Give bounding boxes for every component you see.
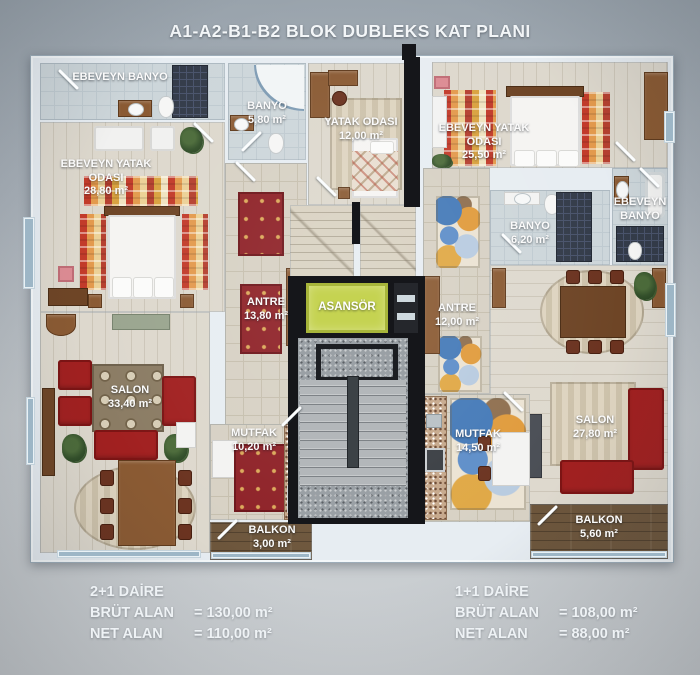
room-ebeveyn-yatak-left <box>40 122 225 312</box>
tv-cabinet <box>42 388 55 476</box>
legend-1plus1: 1+1 DAİRE BRÜT ALAN= 108,00 m² NET ALAN=… <box>455 582 638 645</box>
sofa-red <box>560 460 634 494</box>
dresser <box>48 288 88 306</box>
dining-chair <box>178 470 192 486</box>
pillow <box>536 150 557 167</box>
pillow <box>558 150 579 167</box>
rug-mosaic <box>182 214 208 290</box>
room-salon-left <box>40 312 210 553</box>
room-antre-right <box>423 168 490 394</box>
dining-chair <box>100 524 114 540</box>
dining-table <box>118 460 176 546</box>
shower-tiles <box>172 65 208 118</box>
legend-2plus1: 2+1 DAİRE BRÜT ALAN= 130,00 m² NET ALAN=… <box>90 582 273 645</box>
sink-icon <box>514 193 531 205</box>
sofa-red <box>94 430 158 460</box>
chair <box>478 466 491 481</box>
elevator-label: ASANSÖR <box>306 301 388 313</box>
dining-chair <box>588 270 602 284</box>
window-bay <box>24 218 34 288</box>
stair-divider-wall <box>352 202 360 244</box>
room-label: ANTRE13,80 m² <box>230 296 302 323</box>
buffet <box>492 268 506 308</box>
rug-mosaic <box>582 92 610 164</box>
page-title: A1-A2-B1-B2 BLOK DUBLEKS KAT PLANI <box>0 21 700 42</box>
room-label: EBEVEYN BANYO <box>613 196 667 223</box>
window <box>58 551 200 557</box>
window-bay <box>666 284 675 336</box>
legend-title: 2+1 DAİRE <box>90 582 273 603</box>
armchair-white <box>150 126 175 151</box>
armchair-red <box>58 396 92 426</box>
dining-chair <box>100 498 114 514</box>
ottoman <box>434 76 450 89</box>
sofa-red <box>162 376 196 426</box>
pillow <box>133 277 153 298</box>
rug-pebble <box>438 336 482 392</box>
window-bay <box>665 112 674 142</box>
rug-red <box>234 444 290 512</box>
core-divider-wall <box>404 57 420 207</box>
dining-chair <box>178 498 192 514</box>
room-label: SALON33,40 m² <box>97 384 163 411</box>
sideboard <box>112 314 170 330</box>
blanket <box>352 151 398 191</box>
toilet-icon <box>158 96 174 118</box>
sofa-white <box>94 126 144 151</box>
floor-plan-scene: A1-A2-B1-B2 BLOK DUBLEKS KAT PLANI EBEVE… <box>0 0 700 675</box>
staircase-upper-right <box>360 205 416 277</box>
room-label: BALKON3,00 m² <box>239 524 305 551</box>
dining-chair <box>610 340 624 354</box>
room-label: EBEVEYN YATAK ODASI28,80 m² <box>52 158 160 199</box>
staircase-upper-left <box>290 205 354 277</box>
legend-title: 1+1 DAİRE <box>455 582 638 603</box>
plant-icon <box>634 272 656 300</box>
desk <box>310 72 330 118</box>
sofa-red <box>628 388 664 470</box>
nightstand <box>338 187 350 199</box>
room-label: EBEVEYN BANYO <box>70 71 170 85</box>
toilet-icon <box>628 242 642 260</box>
desk <box>328 70 358 86</box>
rug-pebble <box>436 196 480 268</box>
window <box>27 398 34 464</box>
kitchen-sink-icon <box>426 414 442 428</box>
armchair-red <box>58 360 92 390</box>
shaft-vent-icon <box>397 313 415 320</box>
ottoman <box>58 266 74 282</box>
nightstand <box>88 294 102 308</box>
side-table <box>46 314 76 336</box>
rug-mosaic <box>80 214 106 290</box>
dining-chair <box>178 524 192 540</box>
shaft-vent-icon <box>397 295 415 302</box>
sink-icon <box>128 103 144 116</box>
dining-chair <box>566 340 580 354</box>
room-label: MUTFAK10,20 m² <box>221 427 287 454</box>
serving-cart <box>176 422 196 448</box>
plant-icon <box>62 434 86 462</box>
room-label: BALKON5,60 m² <box>561 514 637 541</box>
room-label: BANYO6,20 m² <box>495 220 565 247</box>
desk-chair <box>332 91 347 106</box>
rug-red <box>238 192 284 256</box>
dining-chair <box>610 270 624 284</box>
pillow <box>112 277 132 298</box>
balcony-railing <box>212 553 310 558</box>
dining-chair <box>100 470 114 486</box>
dining-chair <box>588 340 602 354</box>
room-label: MUTFAK14,50 m² <box>445 428 511 455</box>
toilet-icon <box>268 133 284 154</box>
balcony-railing <box>532 552 666 557</box>
room-label: EBEVEYN YATAK ODASI25,50 m² <box>438 122 530 163</box>
room-label: SALON27,80 m² <box>557 414 633 441</box>
room-label: ANTRE12,00 m² <box>426 302 488 329</box>
stair-rail <box>347 376 359 468</box>
room-label: YATAK ODASI12,00 m² <box>317 116 405 143</box>
room-mutfak-right <box>423 394 530 522</box>
dining-chair <box>566 270 580 284</box>
pillow <box>154 277 174 298</box>
shaft <box>394 283 418 333</box>
nightstand <box>180 294 194 308</box>
room-label: BANYO5,80 m² <box>231 100 303 127</box>
dining-table <box>560 286 626 338</box>
stove-icon <box>425 448 445 472</box>
